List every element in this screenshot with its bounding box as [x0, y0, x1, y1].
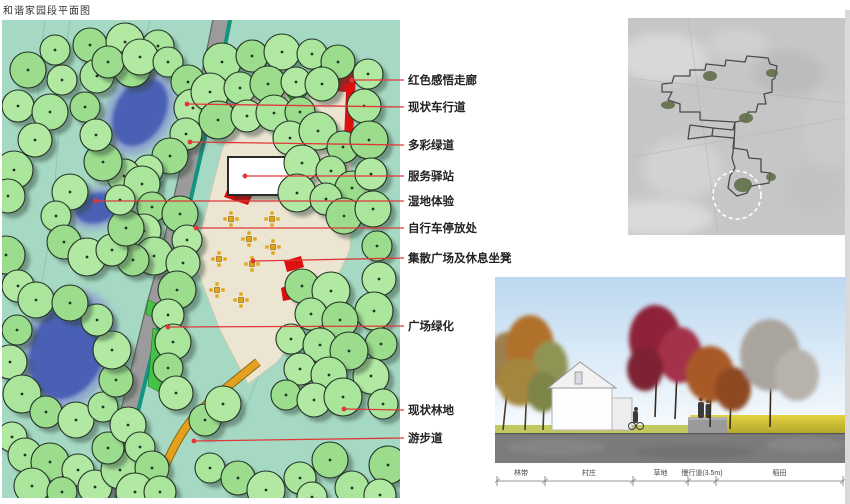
tree-center-dot [141, 183, 144, 186]
tree-center-dot [167, 367, 170, 370]
tree-center-dot [49, 461, 52, 464]
tree-center-dot [139, 446, 142, 449]
plan-label-plaza-greening: 广场绿化 [408, 319, 454, 333]
tree-center-dot [159, 491, 162, 494]
tree-center-dot [267, 83, 270, 86]
tree-center-dot [351, 487, 354, 490]
tree-center-dot [111, 249, 114, 252]
tree-center-dot [86, 256, 89, 259]
tree-center-dot [176, 289, 179, 292]
dimension-strip: 林带村庄草地慢行道(3.5m)稻田 [495, 468, 845, 486]
tree-center-dot [217, 119, 220, 122]
tree-center-dot [35, 299, 38, 302]
tree-center-dot [317, 130, 320, 133]
tree-center-dot [96, 319, 99, 322]
tree-center-dot [182, 262, 185, 265]
tree-center-dot [115, 379, 118, 382]
tree-center-dot [94, 486, 97, 489]
tree-center-dot [343, 215, 346, 218]
tree-center-dot [179, 213, 182, 216]
tree-center-dot [139, 56, 142, 59]
tree-center-dot [61, 491, 64, 494]
tree-center-dot [380, 343, 383, 346]
tree-center-dot [124, 41, 127, 44]
tree-center-dot [387, 464, 390, 467]
tree-center-dot [339, 319, 342, 322]
tree-center-dot [299, 477, 302, 480]
tree-center-dot [111, 349, 114, 352]
tree-circle [14, 468, 50, 498]
tree-center-dot [313, 399, 316, 402]
dim-label-paddy-field: 稻田 [773, 468, 787, 477]
tree-center-dot [351, 187, 354, 190]
tree-center-dot [84, 106, 87, 109]
tree-center-dot [290, 338, 293, 341]
tree-center-dot [151, 467, 154, 470]
tree-center-dot [167, 61, 170, 64]
plan-label-walking-path: 游步道 [408, 431, 443, 445]
tree-center-dot [21, 393, 24, 396]
tree-center-dot [209, 467, 212, 470]
tree-center-dot [246, 115, 249, 118]
tree-center-dot [75, 419, 78, 422]
dim-label-green-belt: 林带 [514, 468, 528, 477]
tree-center-dot [119, 199, 122, 202]
tree-center-dot [367, 73, 370, 76]
page-edge-strip [845, 10, 850, 504]
tree-center-dot [319, 344, 322, 347]
tree-center-dot [49, 111, 52, 114]
plan-label-service-station: 服务驿站 [408, 169, 454, 183]
tree-center-dot [376, 245, 379, 248]
tree-center-dot [325, 198, 328, 201]
tree-center-dot [102, 161, 105, 164]
tree-center-dot [185, 133, 188, 136]
dim-label-village: 村庄 [582, 468, 596, 477]
tree-center-dot [330, 290, 333, 293]
tree-center-dot [329, 459, 332, 462]
plan-label-bike-parking: 自行车停放处 [408, 221, 477, 235]
tree-center-dot [301, 285, 304, 288]
dim-label-lawn: 草地 [654, 468, 668, 477]
tree-center-dot [172, 341, 175, 344]
tree-center-dot [16, 329, 19, 332]
section-road-band [495, 433, 845, 463]
tree-center-dot [54, 49, 57, 52]
tree-center-dot [186, 239, 189, 242]
slide-page: 和谐家园段平面图 [0, 0, 850, 504]
tree-center-dot [107, 61, 110, 64]
tree-center-dot [61, 79, 64, 82]
tree-center-dot [342, 396, 345, 399]
tree-center-dot [7, 195, 10, 198]
tree-center-dot [153, 255, 156, 258]
tree-center-dot [373, 310, 376, 313]
tree-center-dot [370, 173, 373, 176]
tree-center-dot [169, 155, 172, 158]
tree-center-dot [69, 302, 72, 305]
tree-center-dot [372, 208, 375, 211]
tree-center-dot [209, 91, 212, 94]
tree-center-dot [45, 411, 48, 414]
tree-center-dot [239, 87, 242, 90]
tree-center-dot [34, 139, 37, 142]
tree-center-dot [89, 44, 92, 47]
tree-center-dot [222, 403, 225, 406]
tree-center-dot [378, 278, 381, 281]
plan-label-wetland-experience: 湿地体验 [408, 194, 454, 208]
tree-center-dot [13, 169, 16, 172]
house-window [575, 372, 582, 384]
tree-center-dot [363, 105, 366, 108]
tree-center-dot [127, 424, 130, 427]
tree-center-dot [107, 447, 110, 450]
tree-center-dot [368, 139, 371, 142]
tree-center-dot [192, 107, 195, 110]
tree-center-dot [321, 83, 324, 86]
tree-center-dot [24, 454, 27, 457]
plan-label-colorful-greenway: 多彩绿道 [408, 138, 454, 152]
tree-center-dot [285, 394, 288, 397]
dim-label-slow-lane: 慢行道(3.5m) [681, 468, 722, 477]
tree-center-dot [9, 361, 12, 364]
tree-center-dot [151, 206, 154, 209]
tree-center-dot [295, 81, 298, 84]
tree-center-dot [11, 436, 14, 439]
tree-center-dot [27, 69, 30, 72]
tree-center-dot [175, 392, 178, 395]
tree-center-dot [281, 51, 284, 54]
tree-center-dot [157, 45, 160, 48]
tree-center-dot [299, 111, 302, 114]
site-plan [2, 20, 400, 498]
tree-center-dot [17, 105, 20, 108]
tree-center-dot [299, 368, 302, 371]
tree-center-dot [95, 134, 98, 137]
tree-center-dot [251, 55, 254, 58]
tree-center-dot [77, 469, 80, 472]
tree-center-dot [5, 254, 8, 257]
tree-center-dot [370, 375, 373, 378]
tree-center-dot [63, 241, 66, 244]
satellite-map [628, 18, 845, 235]
tree-center-dot [289, 137, 292, 140]
tree-center-dot [221, 61, 224, 64]
tree-center-dot [337, 61, 340, 64]
plan-label-existing-woodland: 现状林地 [408, 403, 454, 417]
tree-center-dot [167, 314, 170, 317]
tree-center-dot [134, 491, 137, 494]
tree-center-dot [31, 485, 34, 488]
tree-center-dot [187, 81, 190, 84]
plan-label-plaza-seating: 集散广场及休息坐凳 [407, 251, 512, 265]
plan-label-red-corridor: 红色感悟走廊 [408, 73, 477, 87]
tree-center-dot [328, 374, 331, 377]
page-title: 和谐家园段平面图 [3, 2, 91, 17]
tree-center-dot [330, 170, 333, 173]
tree-center-dot [102, 406, 105, 409]
tree-center-dot [379, 494, 382, 497]
tree-center-dot [237, 477, 240, 480]
tree-center-dot [69, 191, 72, 194]
tree-center-dot [17, 285, 20, 288]
tree-center-dot [119, 469, 122, 472]
tree-center-dot [273, 112, 276, 115]
tree-center-dot [296, 192, 299, 195]
tree-center-dot [382, 403, 385, 406]
tree-center-dot [310, 313, 313, 316]
tree-center-dot [348, 350, 351, 353]
tree-center-dot [125, 227, 128, 230]
tree-center-dot [311, 53, 314, 56]
tree-center-dot [55, 215, 58, 218]
plan-label-existing-roadway: 现状车行道 [408, 100, 466, 114]
section-rendering: 林带村庄草地慢行道(3.5m)稻田 [495, 277, 845, 489]
tree-center-dot [204, 419, 207, 422]
tree-center-dot [342, 146, 345, 149]
tree-center-dot [301, 162, 304, 165]
tree-center-dot [265, 489, 268, 492]
